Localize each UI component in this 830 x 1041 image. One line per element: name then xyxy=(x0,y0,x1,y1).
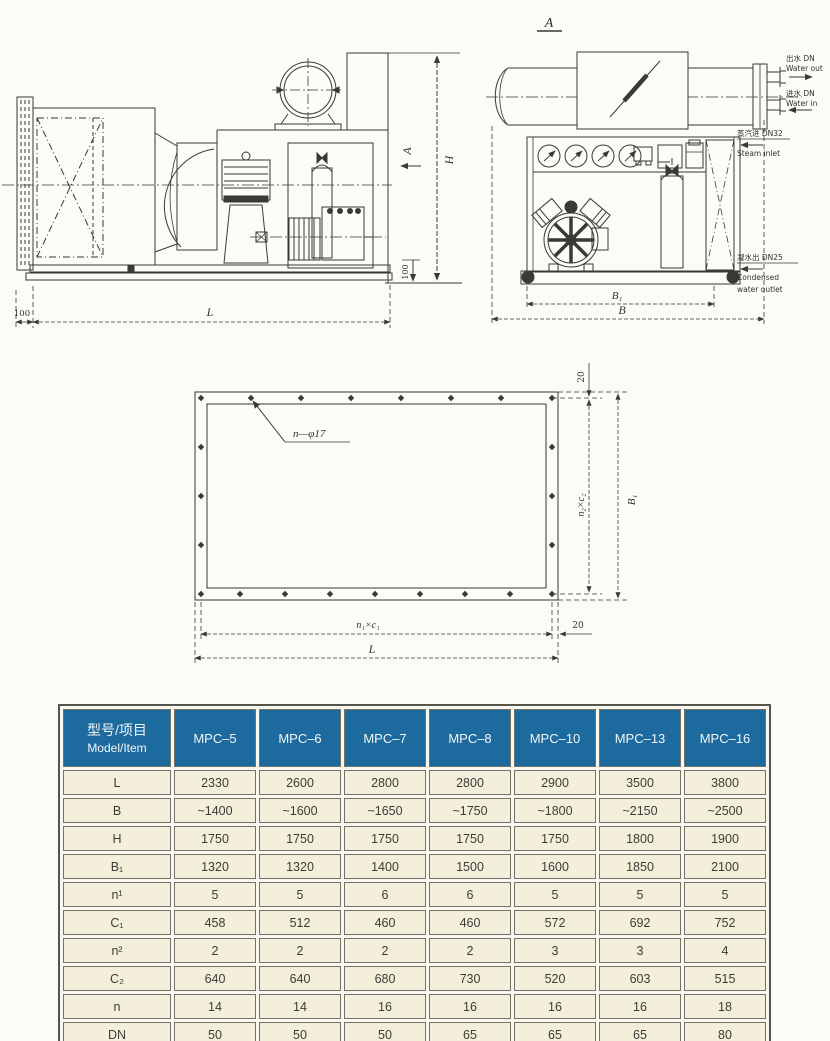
row-label: n xyxy=(63,994,171,1019)
air-cooler-box xyxy=(33,108,155,265)
base-skid xyxy=(521,271,740,284)
value-cell: 1750 xyxy=(344,826,426,851)
value-cell: 1320 xyxy=(259,854,341,879)
cond-out-label-en2: water outlet xyxy=(737,285,783,294)
label-20-bottom: 20 xyxy=(572,621,584,631)
model-column-header: MPC–8 xyxy=(429,709,511,767)
value-cell: 5 xyxy=(174,882,256,907)
value-cell: 5 xyxy=(684,882,766,907)
top-duct-box xyxy=(347,53,388,130)
cond-out-label-en1: Condensed xyxy=(737,273,779,282)
model-item-header: 型号/项目Model/Item xyxy=(63,709,171,767)
row-label: L xyxy=(63,770,171,795)
bolt-holes xyxy=(198,395,555,597)
value-cell: 3 xyxy=(514,938,596,963)
model-column-header: MPC–6 xyxy=(259,709,341,767)
value-cell: 2 xyxy=(344,938,426,963)
value-cell: 512 xyxy=(259,910,341,935)
value-cell: 5 xyxy=(599,882,681,907)
value-cell: 1750 xyxy=(174,826,256,851)
table-row: L2330260028002800290035003800 xyxy=(63,770,766,795)
value-cell: 16 xyxy=(599,994,681,1019)
side-view-drawing: A H 100 100 L xyxy=(0,0,475,345)
value-cell: 2900 xyxy=(514,770,596,795)
value-cell: 2800 xyxy=(344,770,426,795)
water-out-label-en: Water out xyxy=(786,64,823,73)
dim-right xyxy=(552,363,630,600)
model-column-header: MPC–16 xyxy=(684,709,766,767)
value-cell: 16 xyxy=(344,994,426,1019)
water-in-label-en: Water in xyxy=(786,99,818,108)
label-B1-flange: B₁ xyxy=(626,495,638,506)
water-in-label-cn: 进水 DN xyxy=(786,88,815,98)
value-cell: 572 xyxy=(514,910,596,935)
junction-box xyxy=(686,143,703,168)
row-label: DN xyxy=(63,1022,171,1041)
label-B: B xyxy=(618,303,626,317)
value-cell: 50 xyxy=(344,1022,426,1041)
table-row: n²2222334 xyxy=(63,938,766,963)
flange-plan-drawing: n—φ17 20 n₂×c₂ B₁ n₁×c₁ 20 L xyxy=(160,350,640,690)
base-frame xyxy=(26,265,392,280)
model-column-header: MPC–10 xyxy=(514,709,596,767)
water-out-label-cn: 出水 DN xyxy=(786,53,815,63)
view-title: A xyxy=(544,16,554,31)
label-20-top: 20 xyxy=(577,371,587,383)
value-cell: ~1400 xyxy=(174,798,256,823)
row-label: B₁ xyxy=(63,854,171,879)
value-cell: 2 xyxy=(429,938,511,963)
receiver-tank xyxy=(661,158,683,268)
value-cell: 1750 xyxy=(429,826,511,851)
catalog-page: A H 100 100 L xyxy=(0,0,830,1041)
value-cell: 16 xyxy=(429,994,511,1019)
value-cell: 603 xyxy=(599,966,681,991)
label-A-section: A xyxy=(400,147,414,156)
compressor-unit xyxy=(256,143,373,268)
label-B1: B₁ xyxy=(612,290,623,302)
spec-table-body: L2330260028002800290035003800B~1400~1600… xyxy=(63,770,766,1041)
label-H: H xyxy=(442,154,456,165)
table-row: C₁458512460460572692752 xyxy=(63,910,766,935)
label-100-base: 100 xyxy=(401,264,410,279)
label-100-left: 100 xyxy=(14,309,30,319)
value-cell: 460 xyxy=(344,910,426,935)
holes-label: n—φ17 xyxy=(293,428,326,440)
value-cell: 4 xyxy=(684,938,766,963)
value-cell: 50 xyxy=(259,1022,341,1041)
value-cell: 1600 xyxy=(514,854,596,879)
value-cell: 18 xyxy=(684,994,766,1019)
value-cell: 1750 xyxy=(514,826,596,851)
table-row: B~1400~1600~1650~1750~1800~2150~2500 xyxy=(63,798,766,823)
air-louver-panel xyxy=(17,97,33,270)
value-cell: 3800 xyxy=(684,770,766,795)
value-cell: 520 xyxy=(514,966,596,991)
value-cell: 3500 xyxy=(599,770,681,795)
compressor xyxy=(532,199,610,271)
value-cell: 752 xyxy=(684,910,766,935)
front-view-drawing: A B₁ B 出水 DN Water out 进水 DN Water in 蒸汽… xyxy=(480,0,830,345)
value-cell: 692 xyxy=(599,910,681,935)
value-cell: 5 xyxy=(259,882,341,907)
row-label: C₁ xyxy=(63,910,171,935)
table-row: n14141616161618 xyxy=(63,994,766,1019)
label-L: L xyxy=(206,305,214,319)
value-cell: 6 xyxy=(429,882,511,907)
value-cell: 2800 xyxy=(429,770,511,795)
spec-table: 型号/项目Model/ItemMPC–5MPC–6MPC–7MPC–8MPC–1… xyxy=(58,704,771,1041)
steam-in-label-cn: 蒸汽进 DN32 xyxy=(737,128,783,138)
flange-outer-edge xyxy=(195,392,558,600)
value-cell: 460 xyxy=(429,910,511,935)
value-cell: ~1650 xyxy=(344,798,426,823)
label-n1c1: n₁×c₁ xyxy=(356,620,379,631)
value-cell: 458 xyxy=(174,910,256,935)
value-cell: 65 xyxy=(599,1022,681,1041)
gauge-panel xyxy=(538,140,703,168)
value-cell: 50 xyxy=(174,1022,256,1041)
dim-bottom xyxy=(16,285,390,328)
table-row: n¹5566555 xyxy=(63,882,766,907)
row-label: B xyxy=(63,798,171,823)
spec-table-head: 型号/项目Model/ItemMPC–5MPC–6MPC–7MPC–8MPC–1… xyxy=(63,709,766,767)
value-cell: ~1750 xyxy=(429,798,511,823)
table-row: DN50505065656580 xyxy=(63,1022,766,1041)
value-cell: 1850 xyxy=(599,854,681,879)
value-cell: 1400 xyxy=(344,854,426,879)
value-cell: 2600 xyxy=(259,770,341,795)
table-row: C₂640640680730520603515 xyxy=(63,966,766,991)
value-cell: 1750 xyxy=(259,826,341,851)
flange-inner-edge xyxy=(207,404,546,588)
table-row: B₁1320132014001500160018502100 xyxy=(63,854,766,879)
value-cell: 2 xyxy=(259,938,341,963)
value-cell: 2 xyxy=(174,938,256,963)
dim-bottom xyxy=(195,602,592,664)
value-cell: 515 xyxy=(684,966,766,991)
value-cell: 14 xyxy=(174,994,256,1019)
table-row: H1750175017501750175018001900 xyxy=(63,826,766,851)
value-cell: 16 xyxy=(514,994,596,1019)
value-cell: 640 xyxy=(174,966,256,991)
duct-box xyxy=(577,52,688,129)
label-L-flange: L xyxy=(368,642,376,656)
value-cell: ~2500 xyxy=(684,798,766,823)
value-cell: 680 xyxy=(344,966,426,991)
steam-in-label-en: Steam inlet xyxy=(737,149,780,158)
value-cell: 65 xyxy=(514,1022,596,1041)
value-cell: 3 xyxy=(599,938,681,963)
value-cell: 14 xyxy=(259,994,341,1019)
value-cell: ~2150 xyxy=(599,798,681,823)
cond-out-label-cn: 凝水出 DN25 xyxy=(737,252,783,262)
value-cell: 80 xyxy=(684,1022,766,1041)
spec-table-wrap: 型号/项目Model/ItemMPC–5MPC–6MPC–7MPC–8MPC–1… xyxy=(58,704,771,1041)
value-cell: 6 xyxy=(344,882,426,907)
inlet-pipe-circle xyxy=(272,58,344,130)
row-label: n¹ xyxy=(63,882,171,907)
model-column-header: MPC–5 xyxy=(174,709,256,767)
value-cell: ~1600 xyxy=(259,798,341,823)
model-item-header-en: Model/Item xyxy=(64,740,170,756)
model-column-header: MPC–7 xyxy=(344,709,426,767)
switch-box xyxy=(634,147,652,161)
value-cell: 2100 xyxy=(684,854,766,879)
row-label: H xyxy=(63,826,171,851)
motor xyxy=(222,152,270,263)
value-cell: ~1800 xyxy=(514,798,596,823)
water-nozzles xyxy=(767,67,786,115)
value-cell: 1320 xyxy=(174,854,256,879)
value-cell: 65 xyxy=(429,1022,511,1041)
model-item-header-cn: 型号/项目 xyxy=(64,721,170,740)
label-n2c2: n₂×c₂ xyxy=(576,493,587,517)
value-cell: 1800 xyxy=(599,826,681,851)
row-label: n² xyxy=(63,938,171,963)
fan-casing xyxy=(164,143,217,250)
value-cell: 640 xyxy=(259,966,341,991)
value-cell: 2330 xyxy=(174,770,256,795)
value-cell: 5 xyxy=(514,882,596,907)
row-label: C₂ xyxy=(63,966,171,991)
value-cell: 730 xyxy=(429,966,511,991)
model-column-header: MPC–13 xyxy=(599,709,681,767)
value-cell: 1500 xyxy=(429,854,511,879)
value-cell: 1900 xyxy=(684,826,766,851)
